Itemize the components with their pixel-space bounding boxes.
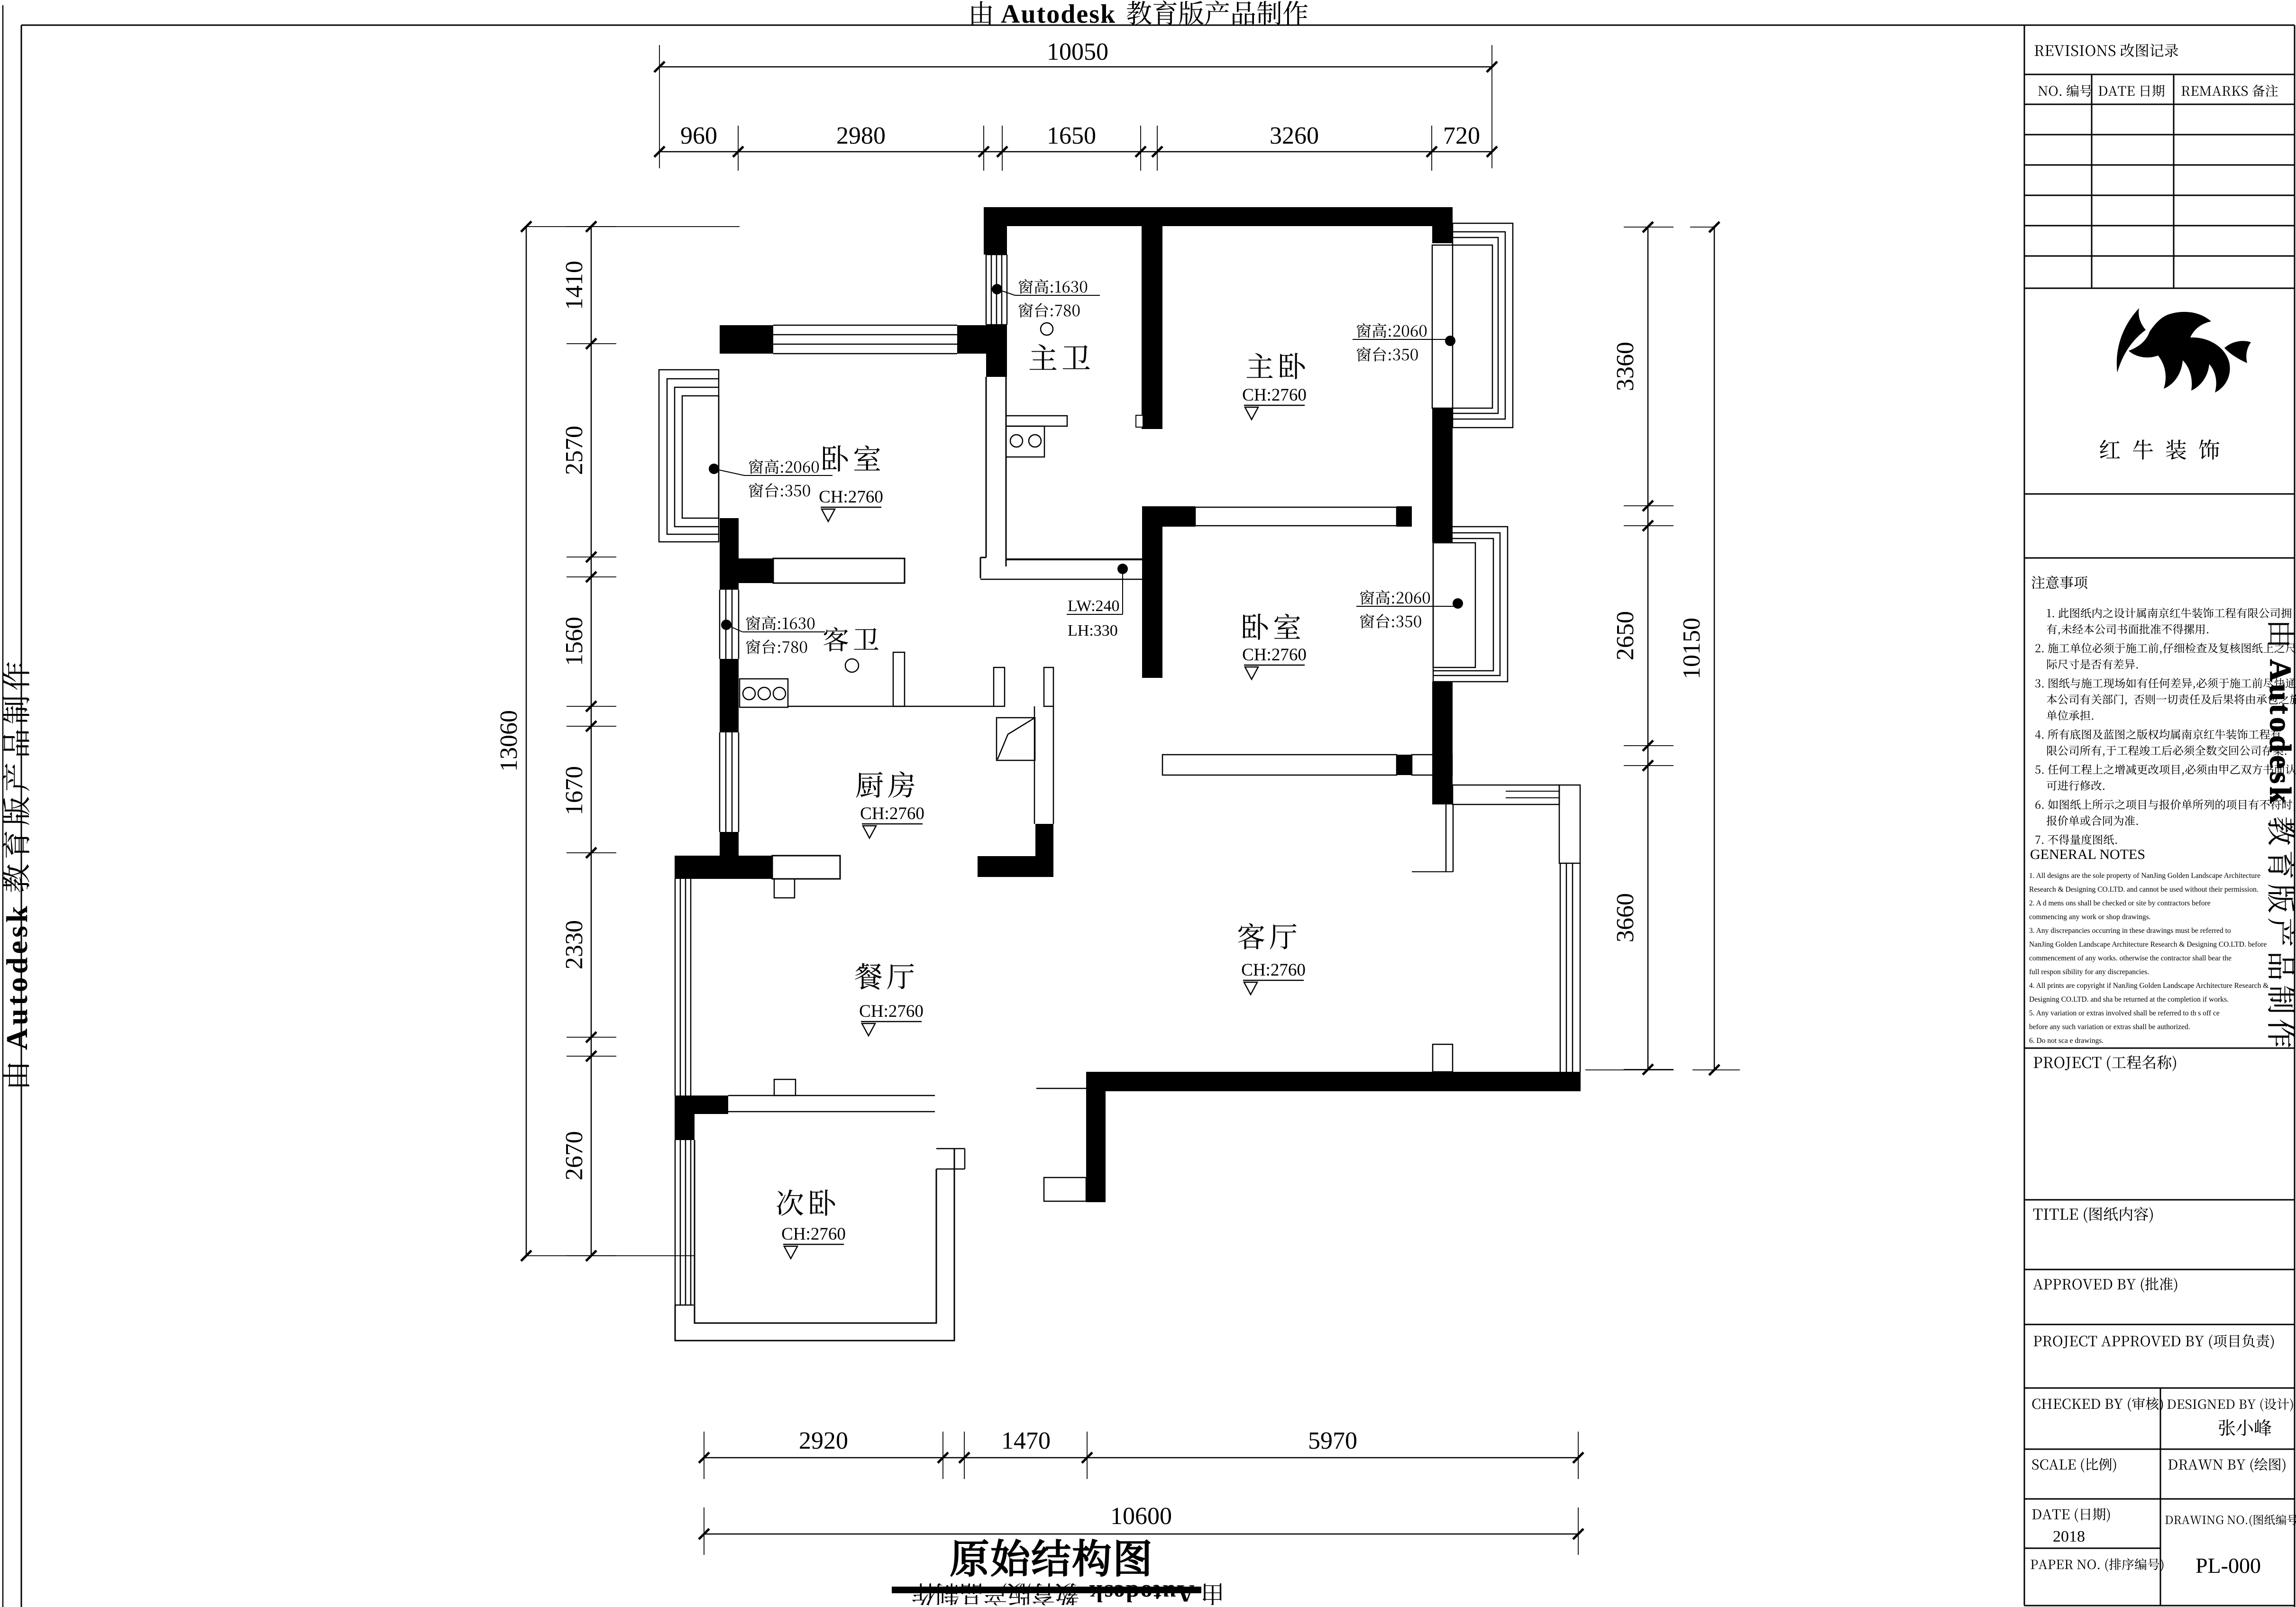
svg-text:CH:2760: CH:2760 xyxy=(1241,960,1306,980)
svg-text:commencement of any works. ot: commencement of any works. otherwise the… xyxy=(2029,954,2232,962)
svg-text:2570: 2570 xyxy=(561,426,588,475)
svg-text:full respon sibility for any: full respon sibility for any discrepanci… xyxy=(2029,968,2149,976)
svg-text:1650: 1650 xyxy=(1047,122,1096,149)
svg-text:13060: 13060 xyxy=(495,710,522,772)
svg-text:720: 720 xyxy=(1443,122,1480,149)
svg-text:1. All designs are the sole pr: 1. All designs are the sole property of … xyxy=(2029,872,2260,880)
svg-text:CH:2760: CH:2760 xyxy=(1242,645,1307,665)
svg-text:6. Do not sca e drawings.: 6. Do not sca e drawings. xyxy=(2029,1037,2104,1045)
svg-text:2920: 2920 xyxy=(799,1427,848,1454)
svg-text:5. Any variation or extras inv: 5. Any variation or extras involved shal… xyxy=(2029,1009,2220,1017)
svg-text:1470: 1470 xyxy=(1001,1427,1051,1454)
svg-text:5970: 5970 xyxy=(1308,1427,1357,1454)
svg-text:Designing CO.LTD. and sha be: Designing CO.LTD. and sha be returned at… xyxy=(2029,995,2229,1004)
svg-text:CH:2760: CH:2760 xyxy=(859,1002,924,1021)
svg-text:CH:2760: CH:2760 xyxy=(819,487,883,507)
svg-text:Research & Designing CO.LTD. a: Research & Designing CO.LTD. and cannot … xyxy=(2029,886,2259,894)
svg-text:4. All prints are copyright if: 4. All prints are copyright if NanJing G… xyxy=(2029,982,2269,990)
svg-text:2018: 2018 xyxy=(2053,1528,2085,1545)
svg-text:3360: 3360 xyxy=(1612,342,1639,391)
svg-text:2330: 2330 xyxy=(561,920,588,969)
svg-text:960: 960 xyxy=(680,122,717,149)
svg-text:10150: 10150 xyxy=(1678,618,1705,679)
svg-text:PL-000: PL-000 xyxy=(2195,1553,2261,1578)
svg-text:CH:2760: CH:2760 xyxy=(1242,385,1307,405)
svg-text:2. A d mens ons shall be che: 2. A d mens ons shall be checked or site… xyxy=(2029,899,2211,907)
svg-text:NanJing Golden Landscape Archi: NanJing Golden Landscape Architecture Re… xyxy=(2029,940,2267,949)
svg-text:3260: 3260 xyxy=(1270,122,1319,149)
svg-text:10050: 10050 xyxy=(1047,38,1108,65)
svg-text:3. Any discrepancies occurring: 3. Any discrepancies occurring in these … xyxy=(2029,927,2231,935)
svg-text:GENERAL NOTES: GENERAL NOTES xyxy=(2030,847,2145,862)
svg-text:commencing any work or shop dr: commencing any work or shop drawings. xyxy=(2029,913,2151,921)
svg-text:CH:2760: CH:2760 xyxy=(781,1224,846,1244)
svg-text:1670: 1670 xyxy=(561,766,588,815)
svg-text:2650: 2650 xyxy=(1612,611,1639,660)
svg-text:2670: 2670 xyxy=(561,1131,588,1180)
svg-text:LW:240: LW:240 xyxy=(1068,597,1120,615)
svg-text:10600: 10600 xyxy=(1110,1503,1172,1530)
svg-text:1410: 1410 xyxy=(561,261,588,310)
svg-text:before any such variation or e: before any such variation or extras shal… xyxy=(2029,1023,2190,1031)
svg-text:CH:2760: CH:2760 xyxy=(860,804,924,823)
svg-text:2980: 2980 xyxy=(836,122,886,149)
svg-text:LH:330: LH:330 xyxy=(1068,622,1118,639)
svg-text:3660: 3660 xyxy=(1612,893,1639,942)
svg-text:1560: 1560 xyxy=(561,617,588,666)
